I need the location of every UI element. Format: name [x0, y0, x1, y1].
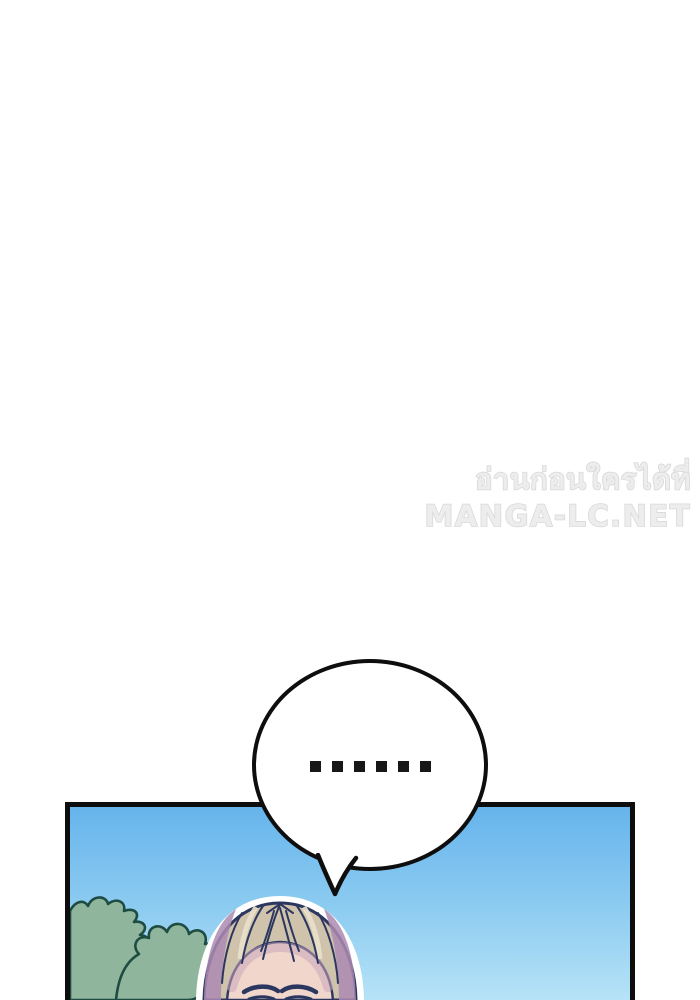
watermark-thai-text: อ่านก่อนใครได้ที่: [425, 462, 692, 497]
dot: [420, 761, 431, 772]
dot: [354, 761, 365, 772]
dot: [398, 761, 409, 772]
watermark-site-name: MANGA-LC.NET: [425, 499, 692, 534]
dot: [310, 761, 321, 772]
speech-bubble: [252, 659, 488, 871]
manga-page: อ่านก่อนใครได้ที่ MANGA-LC.NET: [0, 0, 700, 1000]
site-watermark: อ่านก่อนใครได้ที่ MANGA-LC.NET: [425, 462, 692, 534]
dot: [332, 761, 343, 772]
dot: [376, 761, 387, 772]
speech-bubble-dots: [310, 761, 431, 772]
speech-bubble-tail: [306, 853, 372, 901]
